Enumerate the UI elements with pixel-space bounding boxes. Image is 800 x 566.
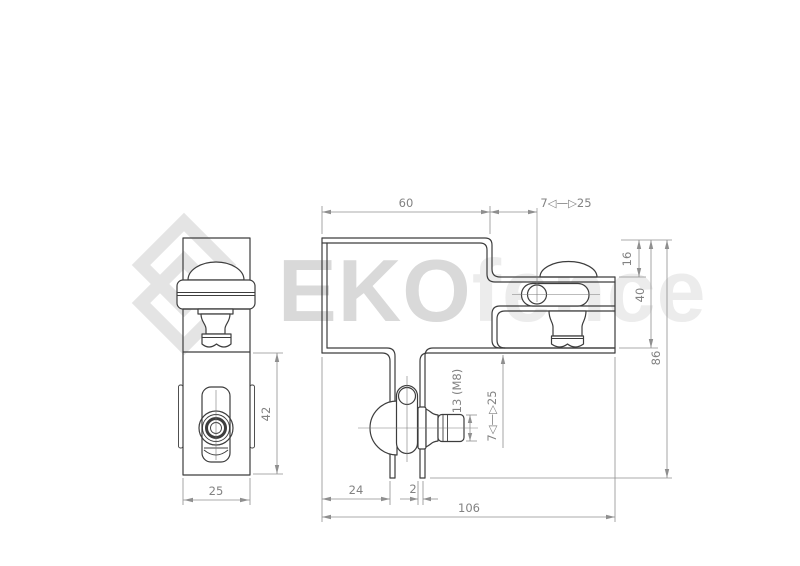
dim-bolt-thread-label: 13 (M8)	[450, 369, 464, 414]
front-right-ear	[250, 385, 255, 448]
dim-front-width-label: 25	[209, 484, 224, 498]
watermark-brand-light: fence	[472, 241, 707, 340]
dim-leg-offset-label: 24	[349, 483, 364, 497]
technical-drawing-page: EKOfence	[0, 0, 800, 566]
dim-top-width-label: 60	[399, 196, 414, 210]
front-bolt-nut	[202, 334, 231, 347]
dim-flange-offset-label: 16	[620, 252, 634, 267]
technical-drawing: EKOfence	[0, 0, 800, 566]
dim-total-width-label: 106	[458, 501, 480, 515]
front-left-ear	[179, 385, 184, 448]
dim-bolt-range-label: 7◁—▷25	[485, 390, 499, 441]
dim-top-range-label: 7◁—▷25	[540, 196, 591, 210]
front-clamp-band	[177, 280, 255, 309]
front-bolt-collar	[198, 309, 233, 314]
side-upper-bolt-nut	[552, 336, 584, 347]
watermark-brand-bold: EKO	[278, 241, 472, 340]
side-upper-bolt-cone	[549, 311, 586, 336]
dim-body-height-label: 40	[633, 288, 647, 303]
dim-front-height-label: 42	[259, 407, 273, 422]
dim-leg-thickness-label: 2	[409, 482, 416, 496]
dim-total-height-label: 86	[649, 351, 663, 366]
